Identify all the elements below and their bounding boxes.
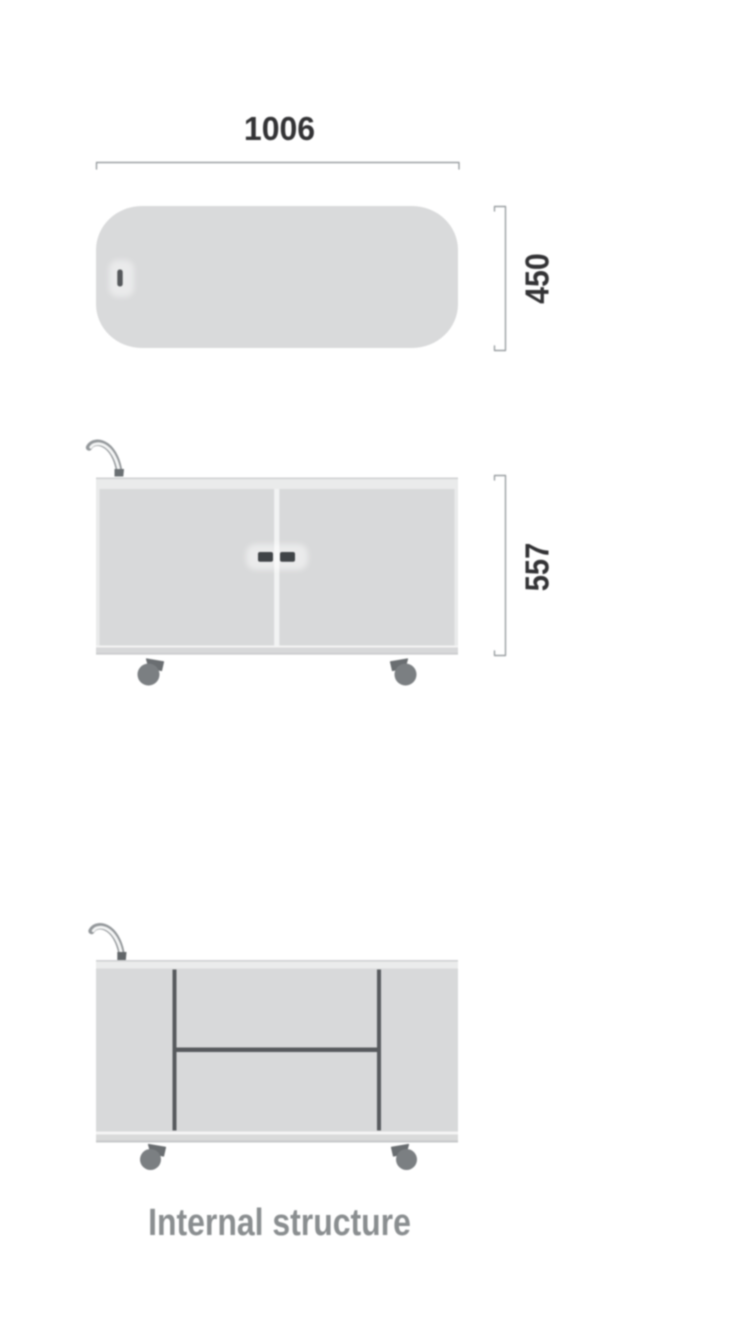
svg-text:450: 450 (518, 253, 555, 304)
svg-text:Internal structure: Internal structure (148, 1201, 411, 1243)
svg-text:1006: 1006 (244, 111, 315, 148)
svg-text:557: 557 (519, 543, 556, 591)
